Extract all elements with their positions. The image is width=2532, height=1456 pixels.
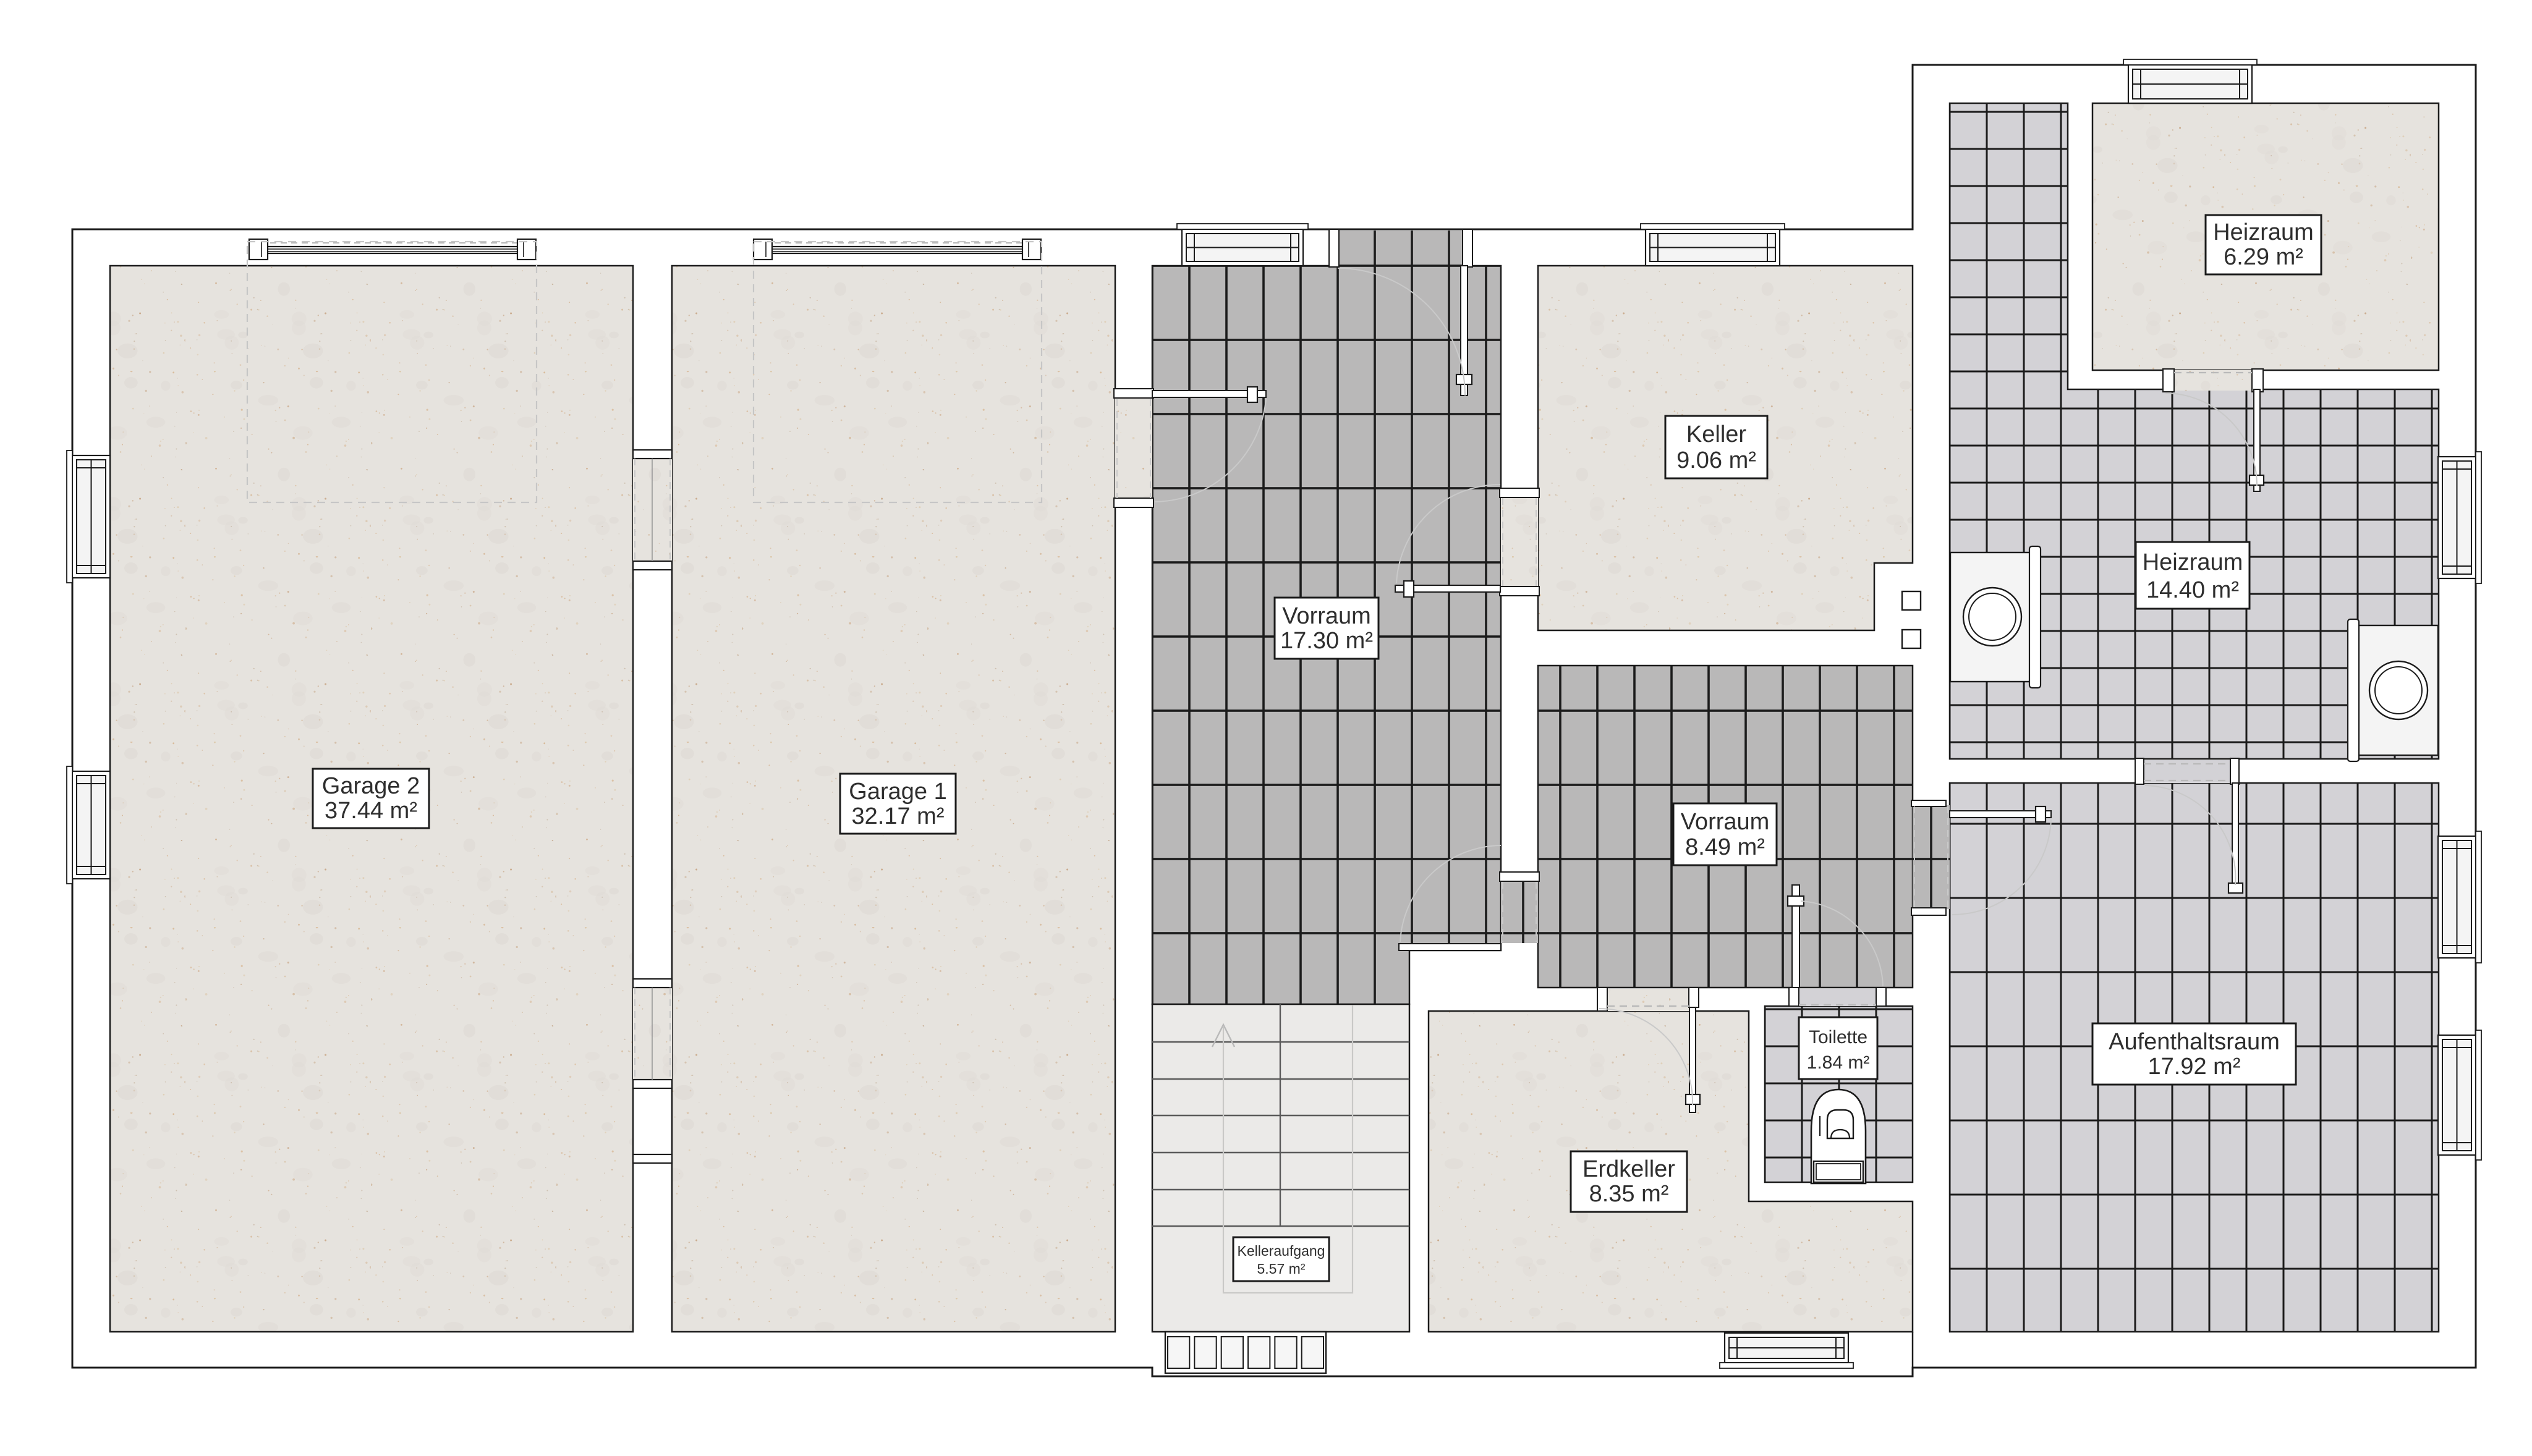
svg-text:Heizraum: Heizraum <box>2143 549 2243 575</box>
svg-text:Toilette: Toilette <box>1809 1027 1867 1048</box>
svg-text:32.17 m²: 32.17 m² <box>852 803 945 829</box>
svg-text:5.57 m²: 5.57 m² <box>1257 1261 1306 1277</box>
svg-text:9.06 m²: 9.06 m² <box>1676 447 1756 473</box>
svg-text:Keller: Keller <box>1686 421 1746 447</box>
svg-text:37.44 m²: 37.44 m² <box>325 798 417 824</box>
svg-text:8.49 m²: 8.49 m² <box>1685 834 1765 860</box>
svg-text:Aufenthaltsraum: Aufenthaltsraum <box>2109 1029 2280 1055</box>
svg-text:Kelleraufgang: Kelleraufgang <box>1238 1243 1325 1259</box>
svg-text:6.29 m²: 6.29 m² <box>2224 244 2303 270</box>
svg-text:1.84 m²: 1.84 m² <box>1807 1052 1870 1073</box>
svg-text:Vorraum: Vorraum <box>1681 809 1770 835</box>
svg-text:8.35 m²: 8.35 m² <box>1589 1181 1669 1207</box>
svg-text:Garage 1: Garage 1 <box>849 779 946 805</box>
svg-text:Garage 2: Garage 2 <box>322 773 420 799</box>
svg-text:Vorraum: Vorraum <box>1282 603 1371 629</box>
svg-text:Heizraum: Heizraum <box>2213 219 2314 245</box>
svg-text:Erdkeller: Erdkeller <box>1582 1156 1675 1182</box>
svg-text:17.30 m²: 17.30 m² <box>1280 628 1373 654</box>
svg-text:14.40 m²: 14.40 m² <box>2146 577 2239 603</box>
svg-text:17.92 m²: 17.92 m² <box>2148 1054 2241 1080</box>
